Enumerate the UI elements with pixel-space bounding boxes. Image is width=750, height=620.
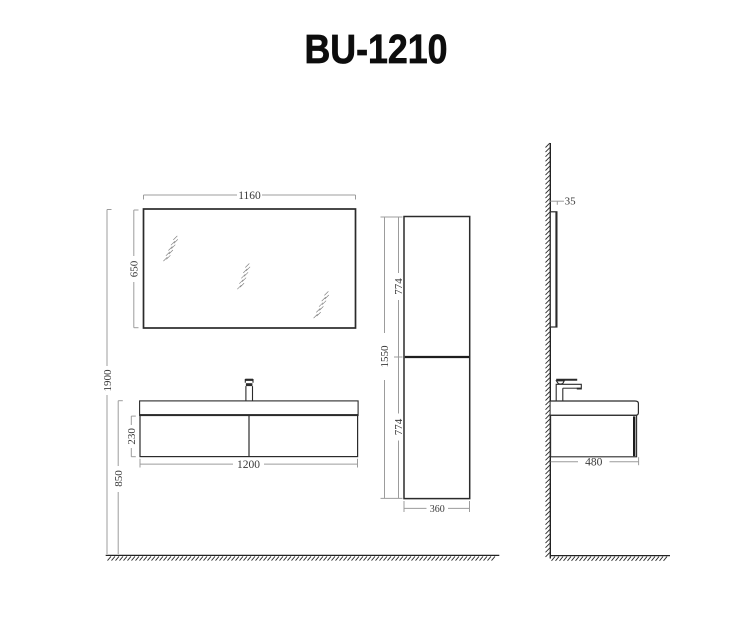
svg-text:230: 230 bbox=[126, 428, 138, 445]
svg-text:1550: 1550 bbox=[379, 345, 391, 368]
svg-text:480: 480 bbox=[585, 457, 603, 469]
svg-text:650: 650 bbox=[129, 260, 141, 277]
svg-text:1200: 1200 bbox=[237, 459, 260, 471]
svg-text:774: 774 bbox=[393, 418, 405, 435]
svg-text:BU-1210: BU-1210 bbox=[305, 26, 448, 72]
svg-text:35: 35 bbox=[565, 196, 577, 208]
svg-text:850: 850 bbox=[113, 470, 125, 487]
svg-text:1900: 1900 bbox=[102, 369, 114, 392]
svg-text:360: 360 bbox=[430, 504, 445, 515]
svg-text:1160: 1160 bbox=[238, 190, 261, 202]
svg-text:774: 774 bbox=[393, 278, 405, 295]
